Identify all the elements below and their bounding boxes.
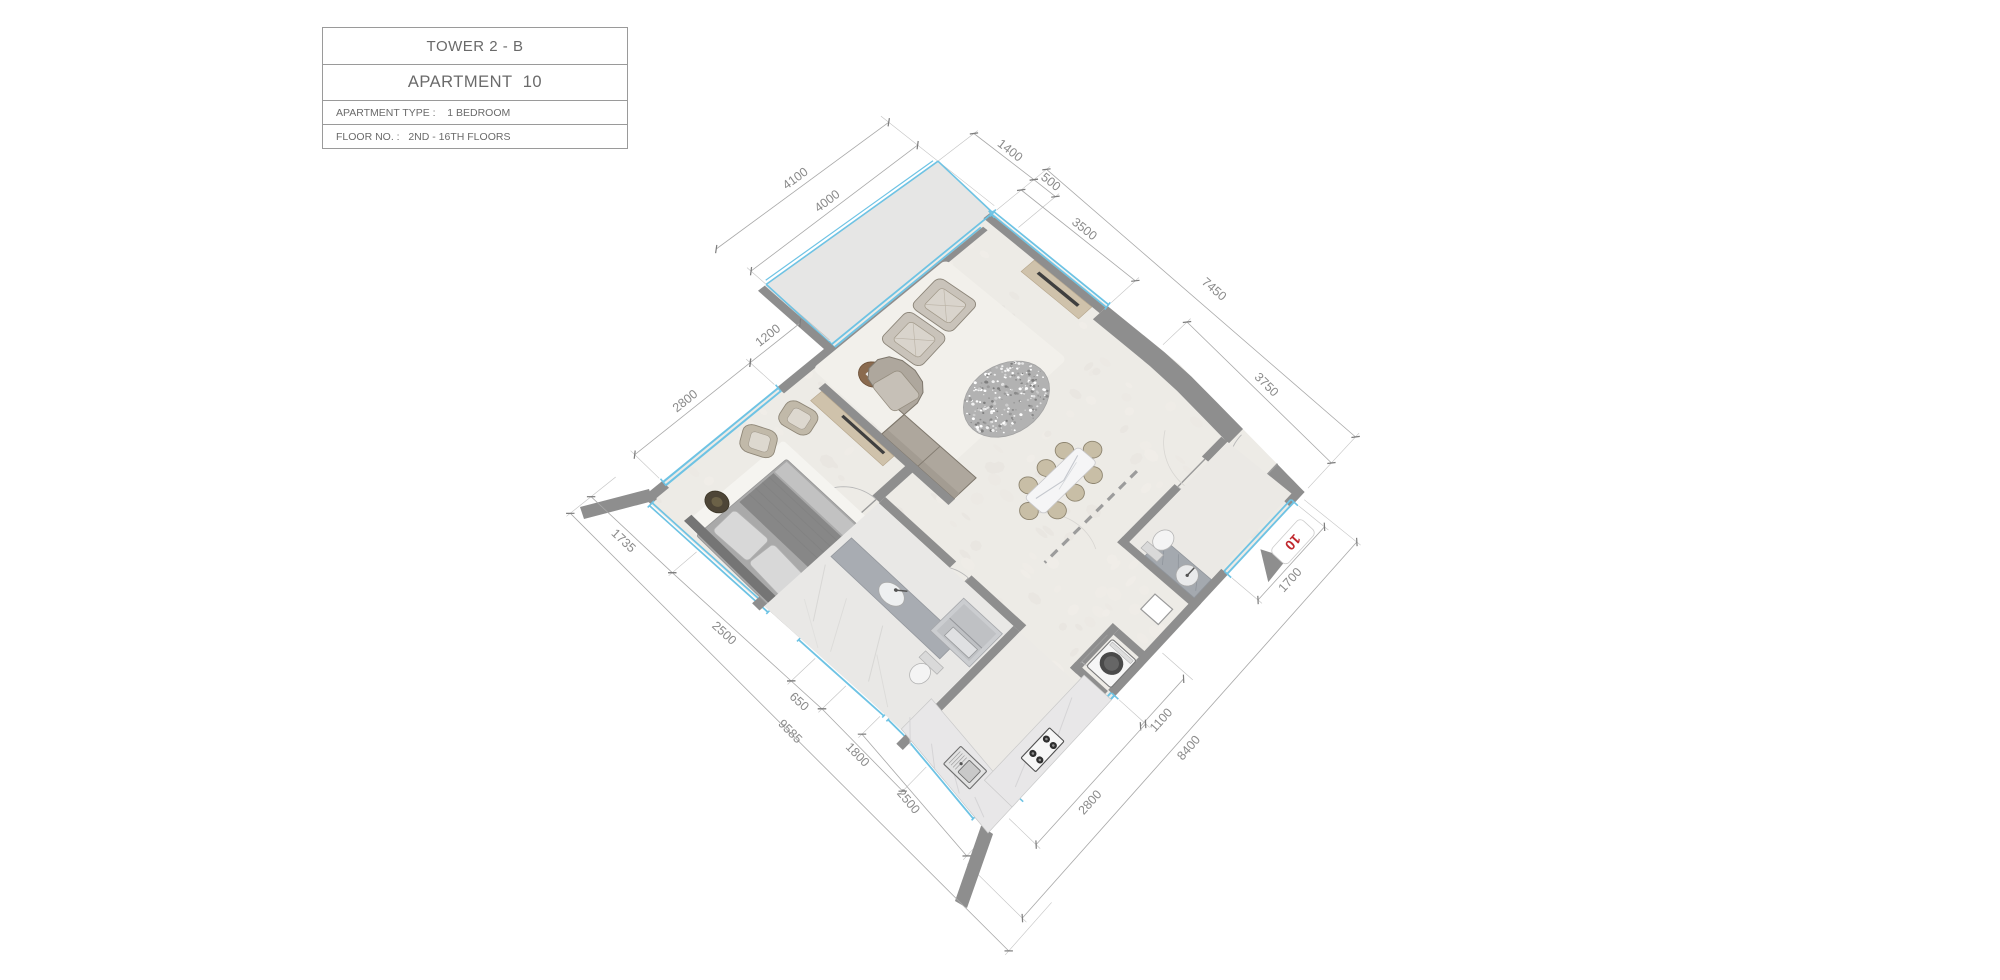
svg-text:1735: 1735 xyxy=(609,526,639,555)
svg-text:9585: 9585 xyxy=(775,717,805,747)
svg-text:1200: 1200 xyxy=(753,321,784,349)
svg-text:650: 650 xyxy=(787,689,812,713)
svg-text:1400: 1400 xyxy=(995,136,1026,164)
svg-text:2500: 2500 xyxy=(894,786,923,816)
svg-text:3750: 3750 xyxy=(1252,370,1282,399)
svg-text:2500: 2500 xyxy=(709,619,739,648)
svg-text:3500: 3500 xyxy=(1069,215,1100,243)
svg-text:8400: 8400 xyxy=(1174,733,1203,763)
svg-text:2800: 2800 xyxy=(670,387,701,415)
svg-text:1800: 1800 xyxy=(843,740,872,770)
svg-text:1700: 1700 xyxy=(1276,565,1305,595)
svg-text:4100: 4100 xyxy=(780,165,811,193)
svg-text:2800: 2800 xyxy=(1076,787,1105,817)
svg-text:1100: 1100 xyxy=(1147,705,1175,734)
svg-text:500: 500 xyxy=(1038,170,1063,194)
svg-text:4000: 4000 xyxy=(812,187,843,215)
svg-text:7450: 7450 xyxy=(1199,275,1229,304)
